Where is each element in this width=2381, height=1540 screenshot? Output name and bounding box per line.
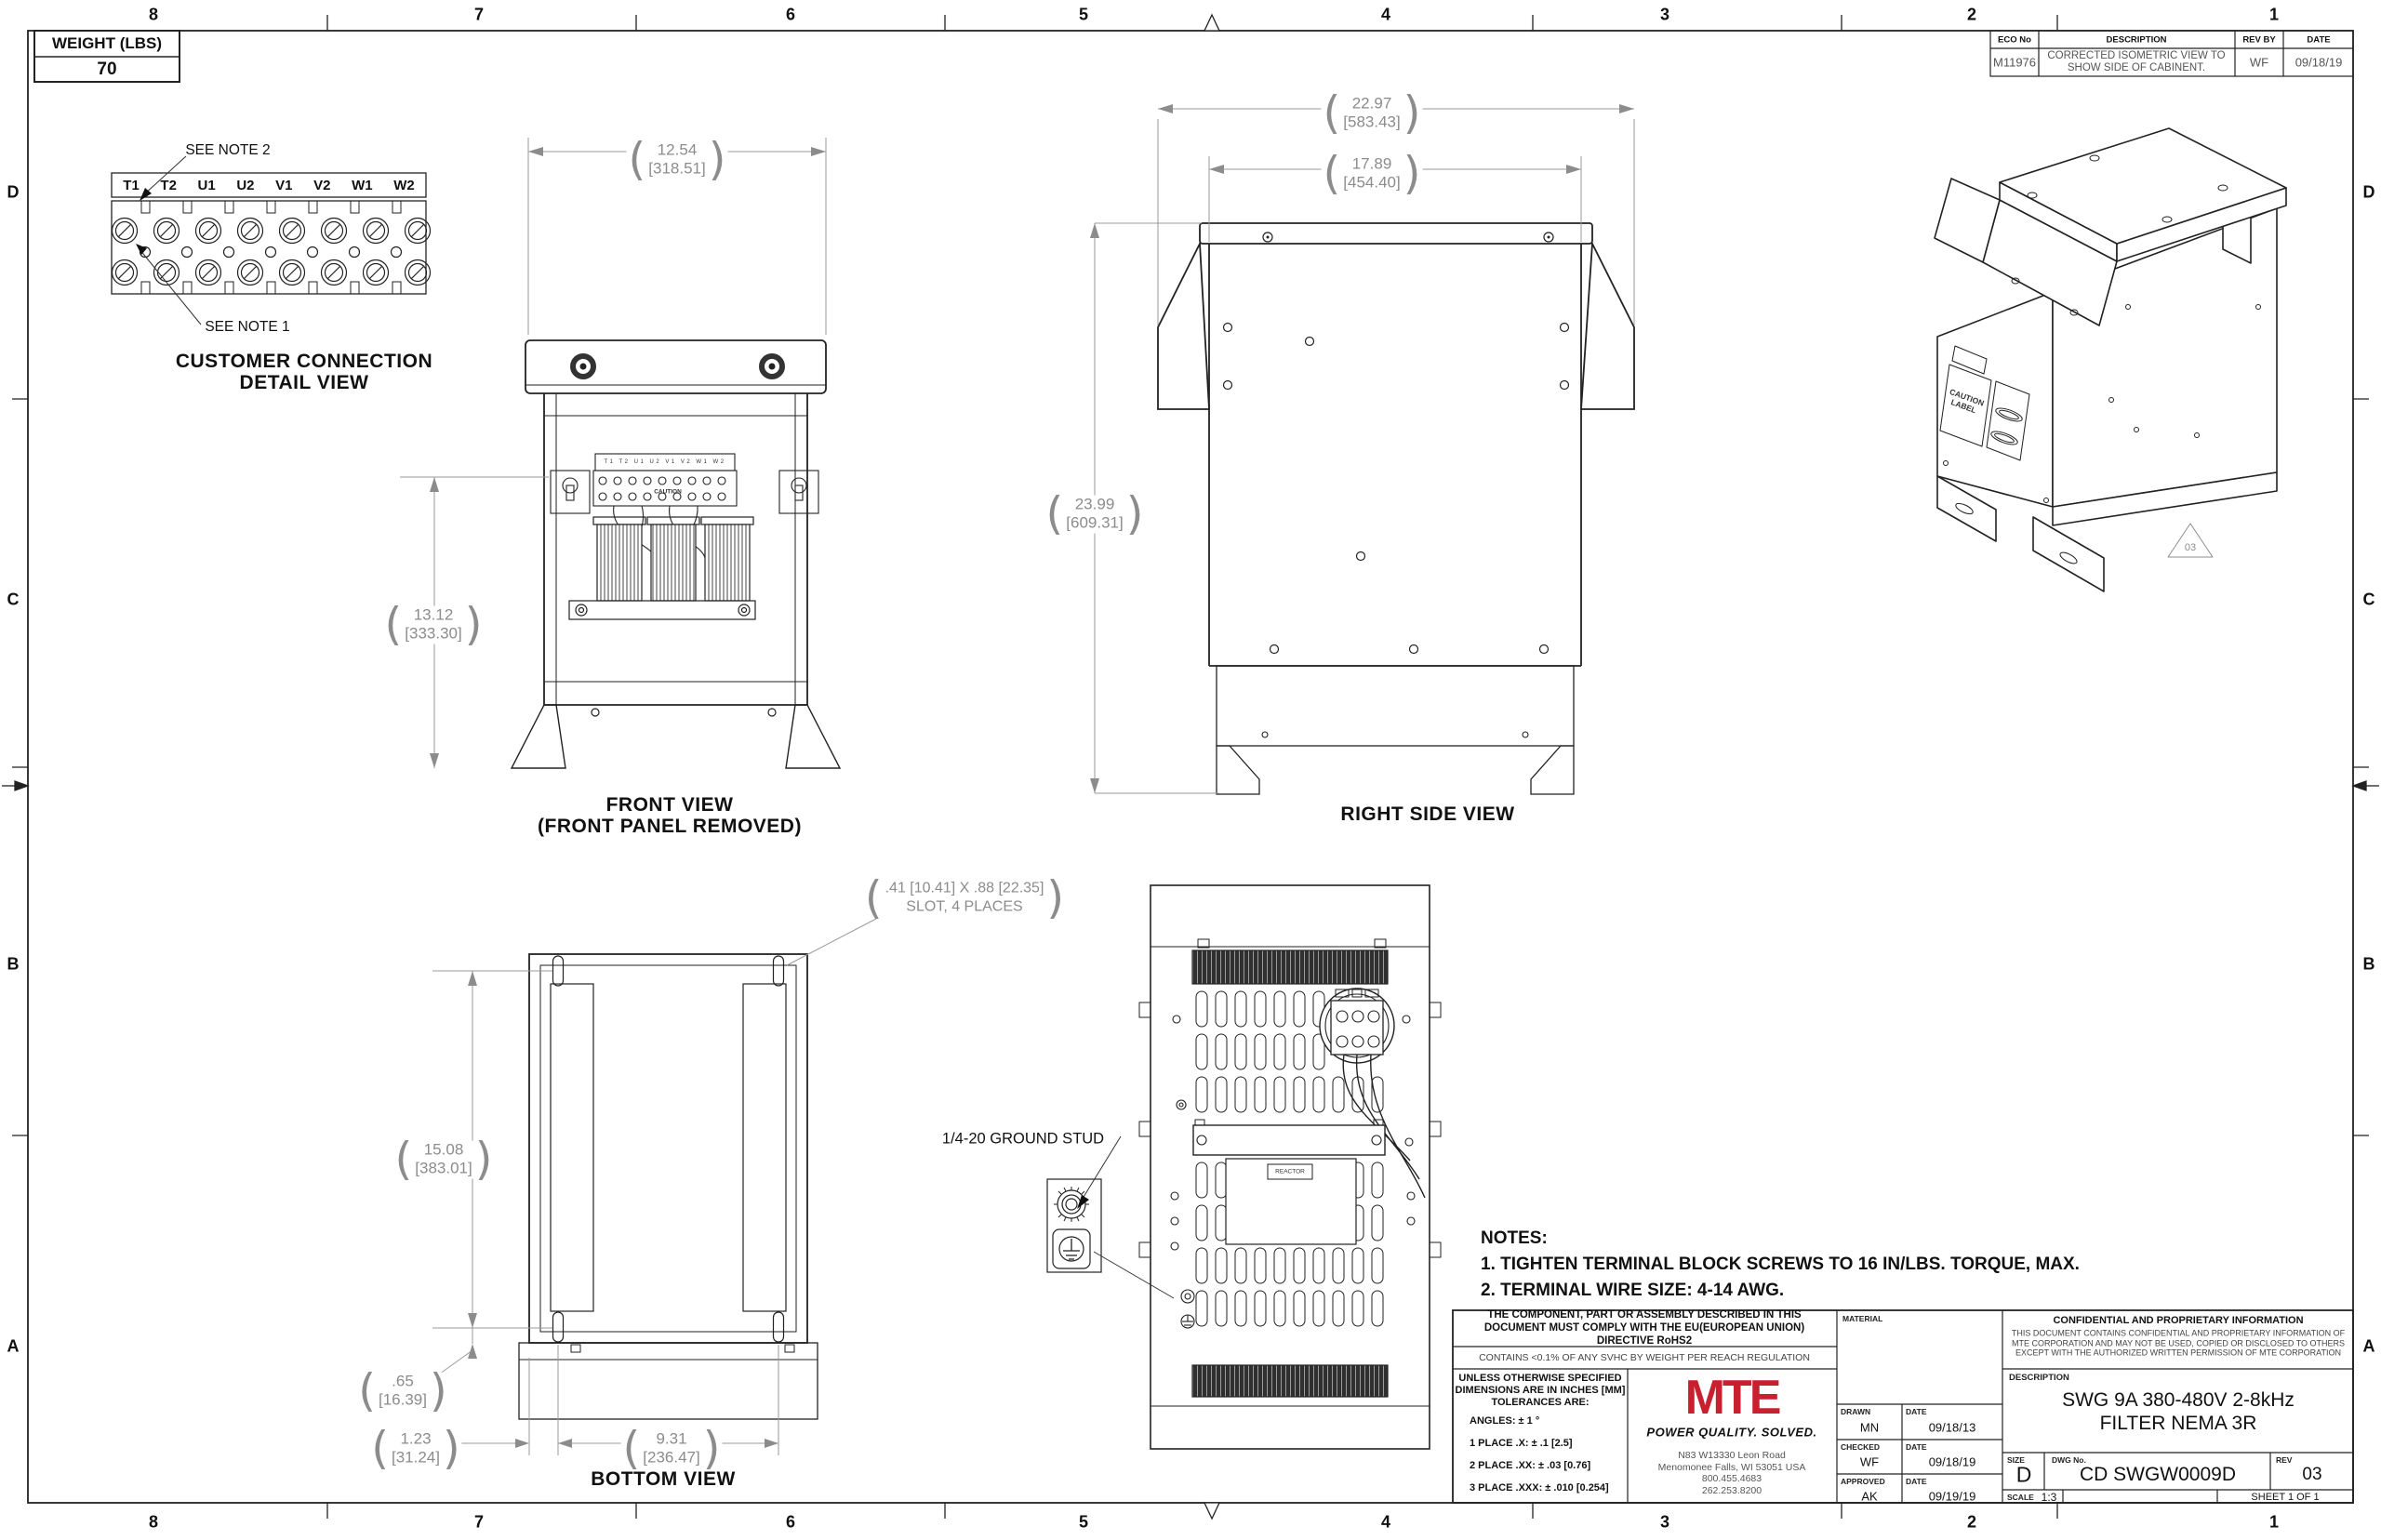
weight-box-label: WEIGHT (LBS) — [52, 34, 162, 53]
material-label: MATERIAL — [1842, 1314, 1882, 1323]
iso-rev-flag: 03 — [2185, 542, 2196, 553]
bottom-view-width-dim: (9.31[236.47]) — [621, 1430, 723, 1468]
front-view-height-dim: (13.12[333.30]) — [383, 606, 485, 644]
size-value: D — [2016, 1463, 2032, 1488]
description-label: DESCRIPTION — [2009, 1373, 2069, 1383]
bottom-view-side-dim: (1.23[31.24]) — [369, 1430, 461, 1468]
eco-header-date: DATE — [2307, 35, 2330, 46]
description-value: SWG 9A 380-480V 2-8kHz FILTER NEMA 3R — [2039, 1388, 2318, 1435]
reach-statement: CONTAINS <0.1% OF ANY SVHC BY WEIGHT PER… — [1479, 1352, 1810, 1363]
checked-date: 09/18/19 — [1929, 1455, 1976, 1469]
bottom-view-offset-dim: (.65[16.39]) — [356, 1373, 448, 1411]
right-view-outer-width-dim: (22.97[583.43]) — [1322, 95, 1423, 133]
compliance-statement: THE COMPONENT, PART OR ASSEMBLY DESCRIBE… — [1458, 1308, 1830, 1347]
checked-name: WF — [1860, 1455, 1879, 1469]
reactor-label: REACTOR — [1275, 1169, 1305, 1175]
tolerance-line2: DIMENSIONS ARE IN INCHES [MM] — [1456, 1385, 1626, 1396]
eco-header-no: ECO No — [1998, 35, 2031, 46]
note-item: 2. TERMINAL WIRE SIZE: 4-14 AWG. — [1481, 1278, 2080, 1304]
ground-stud-callout: 1/4-20 GROUND STUD — [942, 1131, 1104, 1148]
approved-date-label: DATE — [1906, 1477, 1927, 1486]
tolerance-place3: 3 PLACE .XXX: ± .010 [0.254] — [1470, 1482, 1609, 1494]
drawn-name: MN — [1860, 1421, 1879, 1435]
front-view-title-line1: FRONT VIEW — [606, 794, 734, 816]
drawn-label: DRAWN — [1841, 1407, 1870, 1416]
see-note-1-label: SEE NOTE 1 — [205, 319, 289, 336]
eco-date: 09/18/19 — [2295, 56, 2343, 70]
sheet-count: SHEET 1 OF 1 — [2251, 1492, 2319, 1503]
rev-value: 03 — [2302, 1465, 2321, 1485]
front-view-terminal-row: T1 T2 U1 U2 V1 V2 W1 W2 — [604, 459, 725, 465]
approved-label: APPROVED — [1841, 1477, 1885, 1486]
drawing-linework — [0, 0, 2381, 1540]
rev-label: REV — [2276, 1455, 2292, 1465]
right-view-height-dim: (23.99[609.31]) — [1044, 496, 1146, 534]
approved-date: 09/19/19 — [1929, 1490, 1976, 1504]
eco-number: M11976 — [1993, 56, 2036, 70]
mte-tagline: POWER QUALITY. SOLVED. — [1646, 1426, 1816, 1440]
front-view-width-dim: (12.54[318.51]) — [627, 141, 728, 179]
detail-view-title-line2: DETAIL VIEW — [240, 372, 369, 394]
mte-logo: MTE — [1685, 1374, 1779, 1422]
notes-title: NOTES: — [1481, 1226, 2080, 1252]
tolerance-line3: TOLERANCES ARE: — [1491, 1397, 1589, 1408]
confidential-body: THIS DOCUMENT CONTAINS CONFIDENTIAL AND … — [2011, 1328, 2346, 1358]
approved-name: AK — [1861, 1490, 1877, 1504]
drawn-date-label: DATE — [1906, 1407, 1927, 1416]
dwg-no-value: CD SWGW0009D — [2080, 1464, 2236, 1486]
weight-box-value: 70 — [97, 60, 116, 80]
confidential-title: CONFIDENTIAL AND PROPRIETARY INFORMATION — [2053, 1315, 2303, 1326]
bottom-view-title: BOTTOM VIEW — [591, 1468, 736, 1491]
tolerance-place2: 2 PLACE .XX: ± .03 [0.76] — [1470, 1460, 1590, 1471]
detail-terminal-labels: T1T2U1U2V1V2W1W2 — [113, 174, 425, 197]
drawn-date: 09/18/13 — [1929, 1421, 1976, 1435]
scale-label: SCALE — [2007, 1493, 2034, 1502]
tolerance-place1: 1 PLACE .X: ± .1 [2.5] — [1470, 1438, 1573, 1449]
notes-block: NOTES: 1. TIGHTEN TERMINAL BLOCK SCREWS … — [1481, 1226, 2080, 1304]
eco-description: CORRECTED ISOMETRIC VIEW TO SHOW SIDE OF… — [2042, 50, 2232, 74]
checked-date-label: DATE — [1906, 1442, 1927, 1452]
right-view-inner-width-dim: (17.89[454.40]) — [1322, 155, 1423, 193]
eco-header-revby: REV BY — [2242, 35, 2275, 46]
eco-revby: WF — [2250, 56, 2268, 70]
front-view-caution-label: CAUTION — [654, 489, 682, 496]
right-view-title: RIGHT SIDE VIEW — [1340, 803, 1514, 826]
drawing-sheet: 87654321 87654321 DCBA DCBA WEIGHT (LBS)… — [0, 0, 2381, 1540]
slot-callout: (.41 [10.41] X .88 [22.35]SLOT, 4 PLACES… — [863, 880, 1066, 918]
eco-header-description: DESCRIPTION — [2107, 35, 2167, 46]
tolerance-angles: ANGLES: ± 1 ° — [1470, 1415, 1539, 1427]
checked-label: CHECKED — [1841, 1442, 1880, 1452]
note-item: 1. TIGHTEN TERMINAL BLOCK SCREWS TO 16 I… — [1481, 1252, 2080, 1278]
scale-value: 1:3 — [2042, 1491, 2057, 1504]
mte-address: N83 W13330 Leon Road Menomonee Falls, WI… — [1658, 1450, 1806, 1496]
tolerance-line1: UNLESS OTHERWISE SPECIFIED — [1458, 1373, 1621, 1384]
see-note-2-label: SEE NOTE 2 — [185, 142, 270, 159]
detail-view-title-line1: CUSTOMER CONNECTION — [176, 351, 432, 373]
front-view-title-line2: (FRONT PANEL REMOVED) — [538, 816, 802, 838]
bottom-view-height-dim: (15.08[383.01]) — [393, 1141, 495, 1179]
